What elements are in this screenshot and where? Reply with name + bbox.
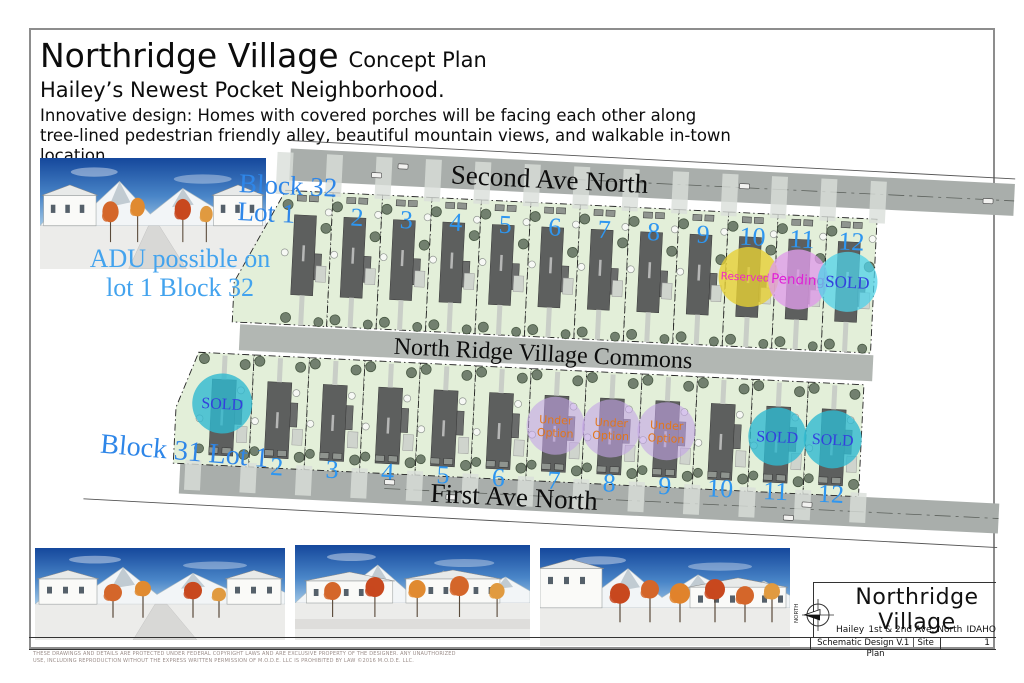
titleblock-state: IDAHO: [967, 625, 996, 635]
tree-icon: [416, 455, 425, 464]
tree-icon: [809, 383, 819, 393]
lot-number: 12: [838, 226, 865, 256]
tree-icon: [518, 239, 528, 249]
tree-icon: [754, 380, 764, 390]
tree-icon: [561, 329, 570, 338]
tree-icon: [777, 223, 787, 233]
north-label: NORTH: [794, 604, 800, 623]
status-label: UnderOption: [592, 416, 630, 444]
tree-icon: [348, 392, 355, 399]
tree-icon: [429, 319, 439, 329]
tree-icon: [848, 479, 858, 489]
tree-icon: [626, 329, 636, 339]
tree-icon: [749, 471, 758, 480]
tree-icon: [793, 476, 803, 486]
tree-icon: [571, 466, 581, 476]
tree-icon: [617, 238, 627, 248]
tree-icon: [330, 315, 340, 325]
tree-icon: [380, 254, 387, 261]
tree-icon: [310, 359, 320, 369]
tree-icon: [728, 221, 738, 231]
tree-icon: [532, 370, 542, 380]
status-label: UnderOption: [647, 418, 685, 446]
tree-icon: [737, 474, 747, 484]
tree-icon: [573, 376, 583, 386]
tree-icon: [413, 322, 422, 331]
tree-icon: [460, 460, 470, 470]
page-title-suffix: Concept Plan: [349, 48, 487, 72]
tree-icon: [578, 263, 585, 270]
tree-icon: [473, 216, 480, 223]
lot-number: 10: [739, 222, 766, 252]
tree-icon: [610, 332, 619, 341]
tree-icon: [431, 206, 441, 216]
rendering-image-bottom-3: [540, 548, 790, 646]
tree-icon: [294, 452, 304, 462]
tree-icon: [638, 465, 647, 474]
lot-number: 4: [449, 207, 463, 237]
tree-icon: [462, 325, 471, 334]
lot-number: 3: [325, 455, 339, 485]
tree-icon: [511, 327, 520, 336]
lot-number: 9: [658, 471, 672, 501]
tree-icon: [469, 230, 479, 240]
tree-icon: [725, 334, 735, 344]
tree-icon: [869, 235, 876, 242]
tree-icon: [517, 373, 527, 383]
tree-icon: [794, 386, 804, 396]
sheet-title: Schematic Design V.1 | Site Plan: [810, 638, 940, 649]
tree-icon: [827, 226, 837, 236]
tree-icon: [365, 361, 375, 371]
tree-icon: [478, 322, 488, 332]
lot-number: 7: [597, 215, 611, 245]
tree-icon: [622, 223, 629, 230]
lot-number: 5: [498, 210, 512, 240]
status-label: Pending: [771, 271, 826, 290]
tree-icon: [374, 211, 381, 218]
tree-icon: [462, 370, 472, 380]
tree-icon: [627, 468, 637, 478]
tree-icon: [666, 246, 676, 256]
tree-icon: [514, 400, 521, 407]
tree-icon: [351, 365, 361, 375]
description-line-1: Innovative design: Homes with covered po…: [40, 106, 760, 126]
tree-icon: [305, 449, 314, 458]
tree-icon: [677, 268, 684, 275]
titleblock-address: 1st & 2nd Ave. North: [868, 625, 962, 635]
tree-icon: [660, 334, 669, 343]
tree-icon: [770, 231, 777, 238]
tree-icon: [527, 460, 536, 469]
tree-icon: [567, 247, 577, 257]
tree-icon: [643, 375, 653, 385]
rendering-image-bottom-1: [35, 548, 285, 640]
tree-icon: [418, 426, 425, 433]
tree-icon: [698, 378, 708, 388]
tree-icon: [362, 423, 369, 430]
tree-icon: [739, 384, 749, 394]
lot-number: 11: [762, 476, 788, 506]
car-icon: [384, 480, 394, 485]
north-arrow-icon: NORTH: [793, 593, 837, 637]
concept-plan-sheet: { "header": { "title": "Northridge Villa…: [0, 0, 1024, 683]
lot-number: 3: [399, 205, 413, 235]
tree-icon: [295, 362, 305, 372]
tree-icon: [481, 209, 491, 219]
tree-icon: [255, 356, 265, 366]
tree-icon: [709, 337, 718, 346]
tree-icon: [671, 226, 678, 233]
tree-icon: [419, 240, 429, 250]
tree-icon: [695, 439, 702, 446]
tree-icon: [528, 261, 535, 268]
tree-icon: [577, 327, 587, 337]
tree-icon: [307, 420, 314, 427]
tree-icon: [325, 209, 332, 216]
tree-icon: [530, 211, 540, 221]
adu-note: ADU possible on lot 1 Block 32: [55, 244, 305, 302]
tree-icon: [628, 378, 638, 388]
tree-icon: [572, 221, 579, 228]
tree-icon: [804, 474, 813, 483]
tree-icon: [850, 389, 860, 399]
copyright-fineprint: THESE DRAWINGS AND DETAILS ARE PROTECTED…: [33, 651, 733, 664]
tree-icon: [421, 364, 431, 374]
status-label: UnderOption: [537, 413, 575, 441]
tree-icon: [736, 411, 743, 418]
car-icon: [398, 164, 408, 169]
tree-icon: [528, 324, 538, 334]
tree-icon: [476, 367, 486, 377]
titleblock-city: Hailey: [836, 625, 864, 635]
tree-icon: [379, 317, 389, 327]
tree-icon: [579, 214, 589, 224]
tree-icon: [332, 202, 342, 212]
title-strip: Schematic Design V.1 | Site Plan 1: [29, 637, 996, 650]
lot-number: 2: [350, 203, 364, 233]
tree-icon: [240, 359, 250, 369]
tree-icon: [479, 258, 486, 265]
tree-icon: [293, 389, 300, 396]
car-icon: [802, 502, 812, 507]
tree-icon: [857, 344, 866, 353]
lot-number: 8: [602, 468, 616, 498]
tree-icon: [582, 463, 591, 472]
car-icon: [739, 183, 749, 188]
tree-icon: [808, 342, 817, 351]
subtitle: Hailey’s Newest Pocket Neighborhood.: [40, 78, 760, 102]
tree-icon: [676, 332, 686, 342]
rendering-image-bottom-2: [295, 545, 530, 640]
tree-icon: [819, 233, 826, 240]
tree-icon: [775, 336, 785, 346]
status-label: SOLD: [756, 428, 799, 447]
tree-icon: [199, 353, 209, 363]
tree-icon: [280, 312, 290, 322]
tree-icon: [523, 218, 530, 225]
tree-icon: [721, 228, 728, 235]
tree-icon: [429, 256, 436, 263]
tree-icon: [824, 339, 834, 349]
tree-icon: [314, 317, 323, 326]
status-label: SOLD: [811, 431, 854, 450]
tree-icon: [361, 452, 370, 461]
lot-number: 10: [707, 473, 734, 503]
status-label: SOLD: [201, 395, 244, 414]
tree-icon: [404, 395, 411, 402]
tree-icon: [349, 455, 359, 465]
title-block: NORTH Northridge Village Hailey 1st & 2n…: [813, 582, 996, 637]
tree-icon: [321, 223, 331, 233]
tree-icon: [251, 417, 258, 424]
tree-icon: [683, 381, 693, 391]
block32-lot1-label: Lot 1: [237, 196, 296, 229]
car-icon: [371, 173, 381, 178]
tree-icon: [516, 463, 526, 473]
status-label: SOLD: [825, 272, 870, 293]
tree-icon: [678, 219, 688, 229]
car-icon: [983, 198, 993, 203]
tree-icon: [370, 232, 380, 242]
lot-number: 2: [270, 452, 284, 482]
tree-icon: [405, 457, 415, 467]
tree-icon: [682, 471, 692, 481]
lot-number: 8: [646, 217, 660, 247]
page-title: Northridge Village: [40, 36, 339, 75]
car-icon: [783, 515, 793, 520]
tree-icon: [587, 372, 597, 382]
tree-icon: [629, 216, 639, 226]
lot-number: 11: [789, 224, 815, 254]
tree-icon: [424, 214, 431, 221]
lot-number: 9: [696, 219, 710, 249]
tree-icon: [363, 320, 372, 329]
site-plan: 2345678910Reserved :11Pending12SOLDSOLD2…: [100, 135, 1015, 550]
tree-icon: [759, 339, 768, 348]
lot-number: 12: [817, 479, 844, 509]
tree-icon: [627, 266, 634, 273]
tree-icon: [471, 457, 480, 466]
tree-icon: [459, 398, 466, 405]
tree-icon: [382, 204, 392, 214]
tree-icon: [473, 428, 480, 435]
tree-icon: [330, 251, 337, 258]
sheet-number: 1: [940, 638, 996, 649]
lot-number: 6: [548, 212, 562, 242]
tree-icon: [406, 367, 416, 377]
tree-icon: [693, 468, 702, 477]
